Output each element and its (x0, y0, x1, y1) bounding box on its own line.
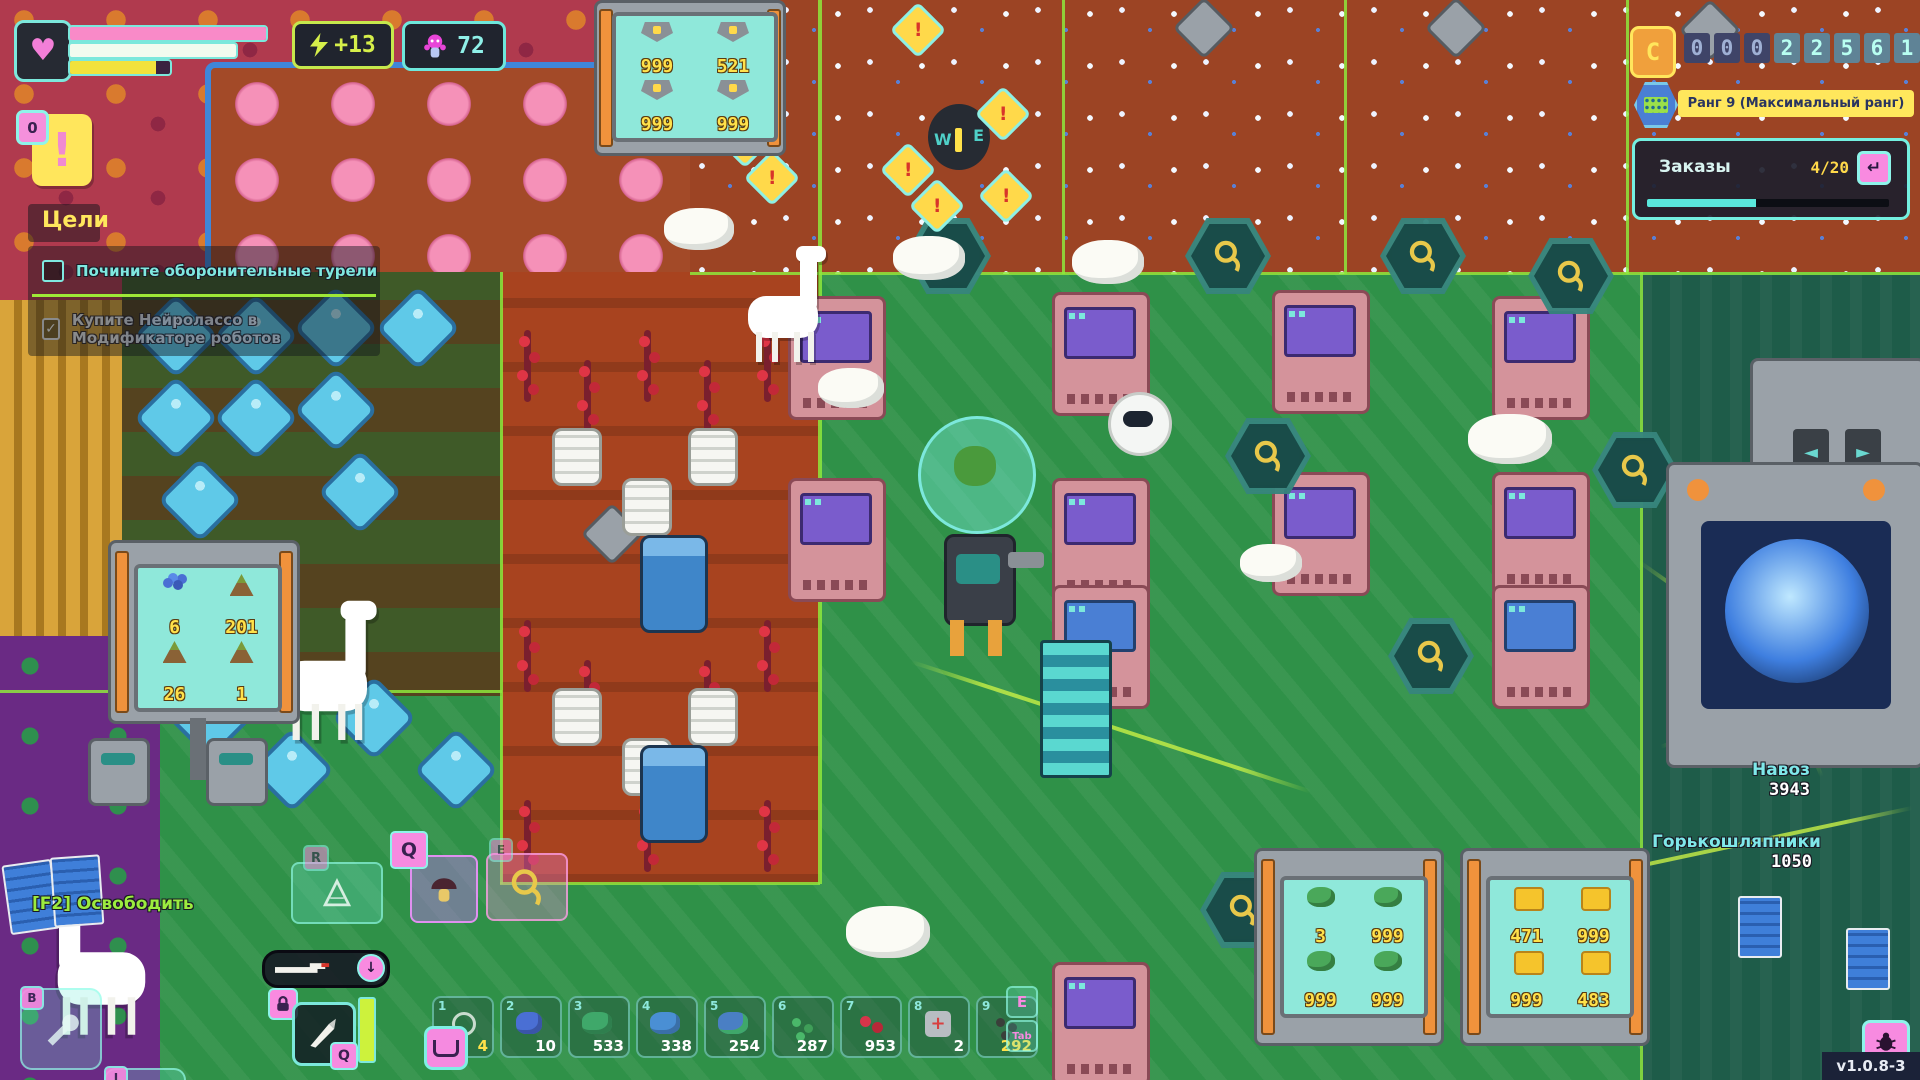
key-e-prompt: E (489, 838, 513, 862)
sapling-icon (230, 574, 254, 596)
shield-bar (68, 42, 238, 59)
silk-stack (552, 688, 602, 746)
solar-panel (1846, 928, 1890, 990)
currency-digit: 0 (1744, 33, 1770, 63)
counter-cell: 26 (142, 639, 207, 704)
llama (748, 252, 828, 372)
hotbar-slot-4[interactable]: 4338 (636, 996, 698, 1058)
notification-count-badge: 0 (16, 110, 49, 145)
berry-vine (524, 330, 531, 402)
bug-icon (1875, 1031, 1897, 1053)
pilot-creature (954, 446, 996, 486)
silk-stack (552, 428, 602, 486)
orders-progress-fill (1647, 199, 1756, 207)
shield-bar-fill (70, 44, 236, 57)
plant-item-icon (582, 1012, 612, 1034)
factory-machine (1052, 962, 1150, 1080)
counter-cell: 1 (209, 639, 274, 704)
berry-vine (764, 620, 771, 692)
heart-icon: ♥ (30, 36, 57, 66)
grid-line (818, 0, 822, 884)
hotbar-key-e[interactable]: E (1006, 986, 1038, 1018)
currency-digit: 2 (1774, 33, 1800, 63)
exclamation-glyph: ! (52, 127, 73, 173)
den-key-icon (955, 128, 962, 152)
currency-digit: 0 (1684, 33, 1710, 63)
stamina-bar (68, 59, 172, 76)
version-label: v1.0.8-3 (1822, 1052, 1920, 1080)
den-key-e: E (973, 126, 984, 145)
orders-title: Заказы (1659, 157, 1731, 177)
gold-icon (1581, 887, 1611, 911)
tranq-gun-icon (275, 961, 333, 977)
plant-item-icon (718, 1012, 748, 1034)
sheep (893, 236, 965, 280)
sheep (846, 906, 930, 958)
inventory-tool-button[interactable]: I (104, 1068, 186, 1080)
robot-monitor-button[interactable] (424, 1026, 468, 1070)
key-i: I (104, 1066, 128, 1080)
coin-icon: C (1630, 26, 1676, 78)
stamina-bar-fill (70, 61, 156, 74)
counter-cell: 999 (696, 78, 770, 134)
silk-stack (688, 688, 738, 746)
wrench-icon (41, 1009, 81, 1049)
hotbar-key-tab[interactable]: Tab (1006, 1020, 1038, 1052)
hotbar-slot-5[interactable]: 5254 (704, 996, 766, 1058)
key-r: R (303, 845, 329, 871)
creatures-badge: 72 (402, 21, 506, 71)
blueberry-icon (163, 578, 173, 588)
download-button[interactable]: ↓ (357, 954, 385, 982)
grid-line (1344, 0, 1347, 274)
berry-vine (584, 360, 591, 432)
worker-robot (88, 738, 150, 806)
health-bar-fill (70, 27, 266, 40)
turret-prompt-panel[interactable] (291, 862, 383, 924)
storage-counter-screen: 3 999 999 999 (1280, 876, 1428, 1018)
charge-meter (358, 997, 376, 1063)
hotbar-slot-6[interactable]: 6287 (772, 996, 834, 1058)
plant-item-icon (516, 1012, 542, 1034)
grid-line (500, 272, 503, 884)
robot-companion (1108, 392, 1172, 456)
goal-item: ✓ Купите Нейролассо в Модификаторе робот… (42, 311, 380, 347)
sheep (1468, 414, 1552, 464)
counter-cell: 6 (142, 572, 207, 637)
counter-cell: 999 (1561, 884, 1626, 946)
health-heart-panel: ♥ (14, 20, 72, 82)
portal-core (1725, 539, 1869, 683)
deposit-label: Навоз 3943 (1690, 760, 1810, 800)
silk-stack (622, 478, 672, 536)
key-q-inject: Q (330, 1042, 358, 1070)
currency-digit: 1 (1894, 33, 1920, 63)
berry-vine (764, 800, 771, 872)
hopper-icon (641, 80, 673, 100)
orders-count: 4/20 (1810, 158, 1849, 177)
lightning-icon (310, 33, 328, 57)
sheep (664, 208, 734, 250)
rank-label: Ранг 9 (Максимальный ранг) (1678, 90, 1914, 117)
den-key-w: W (934, 130, 952, 149)
mushroom-icon (426, 871, 462, 907)
counter-cell: 521 (696, 20, 770, 76)
portal-lamp (1687, 479, 1709, 501)
bush-icon (1307, 951, 1335, 971)
counter-cell: 201 (209, 572, 274, 637)
solar-panel (1738, 896, 1782, 958)
goal-label: Почините оборонительные турели (76, 262, 377, 280)
water-tank (640, 535, 708, 633)
deposit-qty: 3943 (1690, 780, 1810, 800)
grid-line (1626, 0, 1629, 274)
key-b: B (20, 986, 44, 1010)
currency-digit: 5 (1834, 33, 1860, 63)
counter-cell: 471 (1494, 884, 1559, 946)
berry-item-icon (860, 1016, 871, 1027)
goal-item: Почините оборонительные турели (42, 260, 380, 282)
counter-cell: 999 (1288, 948, 1353, 1010)
deposit-label: Горькошляпники 1050 (1652, 832, 1812, 872)
deposit-name: Горькошляпники (1652, 832, 1812, 852)
health-bar (68, 25, 268, 42)
storage-counter-screen: 6 201 26 1 (134, 564, 282, 712)
orders-panel: Заказы 4/20 ↵ (1632, 138, 1910, 220)
conveyor-stairs (1040, 640, 1112, 778)
deposit-name: Навоз (1690, 760, 1810, 780)
goals-divider (32, 294, 376, 297)
water-tank (640, 745, 708, 843)
monitor-icon (433, 1040, 459, 1057)
goal-checkbox-unchecked (42, 260, 64, 282)
player-mech (916, 416, 1036, 656)
seed-item-icon (996, 1018, 1005, 1027)
energy-value: +13 (334, 32, 376, 58)
deposit-qty: 1050 (1652, 852, 1812, 872)
silk-stack (688, 428, 738, 486)
hotbar-slot-3[interactable]: 3533 (568, 996, 630, 1058)
hopper-icon (717, 22, 749, 42)
bush-icon (1374, 951, 1402, 971)
sapling-icon (230, 641, 254, 663)
game-viewport: W E ! ! ! ! ! ! ! 999 521 999 999 6 201 … (0, 0, 1920, 1080)
robot-ammo-panel: ↓ (262, 950, 390, 988)
gold-icon (1581, 951, 1611, 975)
storage-counter-screen: 471 999 999 483 (1486, 876, 1634, 1018)
factory-machine (1272, 290, 1370, 414)
gold-icon (1514, 887, 1544, 911)
goal-label: Купите Нейролассо в Модификаторе роботов (72, 311, 380, 347)
sheep (818, 368, 884, 408)
goal-checkbox-checked: ✓ (42, 318, 60, 340)
release-hint: [F2] Освободить (32, 894, 194, 914)
bush-icon (1307, 887, 1335, 907)
portal-machine (1666, 462, 1920, 768)
sheep (1072, 240, 1144, 284)
factory-machine (788, 478, 886, 602)
goals-title: Цели (42, 208, 109, 233)
creature-icon (423, 33, 447, 59)
counter-cell: 999 (1355, 948, 1420, 1010)
medkit-item-icon: + (925, 1011, 951, 1037)
currency-digit: 6 (1864, 33, 1890, 63)
hotbar-slot-7[interactable]: 7953 (840, 996, 902, 1058)
net-turret-icon (320, 876, 354, 910)
gold-icon (1514, 951, 1544, 975)
sheep (1240, 544, 1302, 582)
counter-cell: 483 (1561, 948, 1626, 1010)
bush-icon (1374, 887, 1402, 907)
hopper-icon (641, 22, 673, 42)
mech-leg (988, 620, 1002, 656)
sapling-icon (163, 641, 187, 663)
hotbar-slot-8[interactable]: 8+2 (908, 996, 970, 1058)
mech-leg (950, 620, 964, 656)
goals-panel: Почините оборонительные турели ✓ Купите … (28, 246, 380, 356)
factory-machine (1492, 472, 1590, 596)
factory-machine (1492, 585, 1590, 709)
counter-cell: 999 (1494, 948, 1559, 1010)
factory-machine (1492, 296, 1590, 420)
creatures-value: 72 (457, 33, 485, 59)
robot-visor (1123, 411, 1153, 427)
energy-badge: +13 (292, 21, 394, 69)
solar-panel (50, 854, 105, 927)
berry-vine (644, 330, 651, 402)
berry-vine (704, 360, 711, 432)
worker-robot (206, 738, 268, 806)
counter-cell: 999 (620, 78, 694, 134)
grid-line (690, 272, 1920, 275)
padlock-icon (276, 996, 290, 1012)
tower-pole (190, 718, 206, 780)
grid-line (1062, 0, 1065, 274)
factory-machine (1052, 478, 1150, 602)
rank-dots-screen (1644, 97, 1668, 113)
mech-cannon (1008, 552, 1044, 568)
lasso-prompt-panel[interactable] (486, 853, 568, 921)
currency-counter: 0 0 0 2 2 5 6 1 (1684, 33, 1920, 63)
key-q-prompt: Q (390, 831, 428, 869)
orders-progress-track (1647, 199, 1889, 207)
berry-vine (524, 620, 531, 692)
counter-cell: 3 (1288, 884, 1353, 946)
hotbar: 14 210 3533 4338 5254 6287 7953 8+2 9292 (432, 996, 1038, 1058)
hotbar-slot-2[interactable]: 210 (500, 996, 562, 1058)
orders-enter-button[interactable]: ↵ (1857, 151, 1891, 185)
currency-digit: 0 (1714, 33, 1740, 63)
plant-item-icon (650, 1012, 680, 1034)
sprout-item-icon (792, 1018, 801, 1027)
currency-digit: 2 (1804, 33, 1830, 63)
hopper-icon (717, 80, 749, 100)
collector-counter-screen: 999 521 999 999 (612, 12, 778, 142)
mech-screen (956, 554, 1000, 584)
counter-cell: 999 (620, 20, 694, 76)
counter-cell: 999 (1355, 884, 1420, 946)
repair-tool-button[interactable]: B (20, 988, 102, 1070)
lasso-icon (507, 867, 547, 907)
